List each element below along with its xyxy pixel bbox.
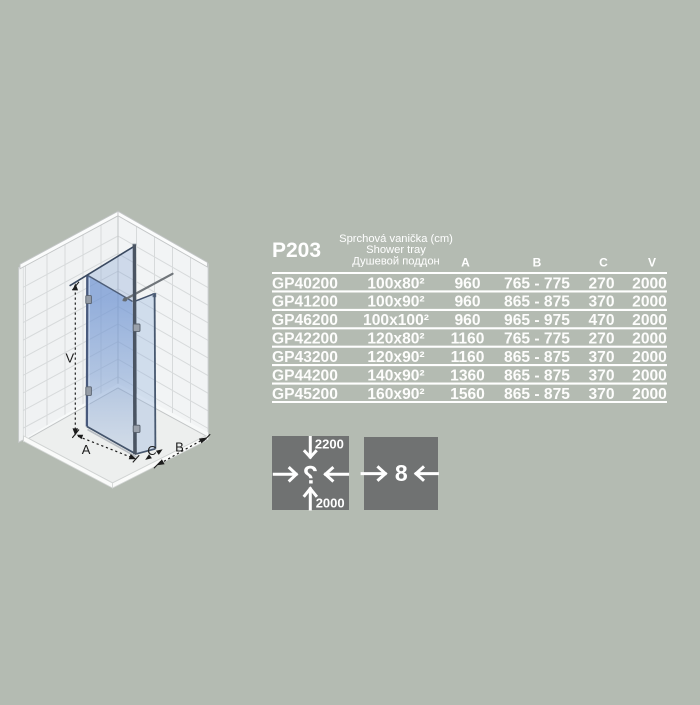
svg-text:965 - 975: 965 - 975 [504,312,570,329]
svg-text:960: 960 [454,312,480,329]
svg-text:C: C [147,443,156,458]
svg-text:Shower tray: Shower tray [366,244,426,256]
svg-text:2000: 2000 [316,495,345,510]
svg-text:1560: 1560 [450,386,485,403]
svg-text:B: B [175,439,184,454]
svg-text:270: 270 [588,275,614,292]
svg-text:960: 960 [454,294,480,311]
svg-text:?: ? [303,462,318,490]
svg-text:2000: 2000 [632,294,667,311]
svg-text:1160: 1160 [451,331,485,348]
svg-text:370: 370 [588,368,614,385]
svg-text:865 - 875: 865 - 875 [504,349,570,366]
svg-text:2000: 2000 [632,331,667,348]
svg-text:GP43200: GP43200 [272,349,338,366]
svg-text:865 - 875: 865 - 875 [504,386,570,403]
svg-text:2000: 2000 [632,349,667,366]
svg-text:GP46200: GP46200 [272,312,338,329]
svg-text:GP42200: GP42200 [272,331,338,348]
svg-text:765 - 775: 765 - 775 [504,331,570,348]
svg-text:100x90²: 100x90² [367,294,424,311]
svg-text:Душевой поддон: Душевой поддон [352,255,440,267]
svg-text:140x90²: 140x90² [367,368,424,385]
svg-text:470: 470 [588,312,614,329]
svg-text:100x100²: 100x100² [363,312,429,329]
svg-text:2000: 2000 [632,368,667,385]
svg-text:370: 370 [588,386,614,403]
svg-text:C: C [599,255,608,269]
svg-text:1360: 1360 [450,368,485,385]
svg-text:1160: 1160 [451,349,485,366]
svg-text:GP41200: GP41200 [272,294,338,311]
svg-text:120x90²: 120x90² [367,349,424,366]
svg-text:160x90²: 160x90² [367,386,424,403]
svg-text:100x80²: 100x80² [367,275,424,292]
svg-text:2000: 2000 [632,275,667,292]
svg-text:2000: 2000 [632,386,667,403]
svg-text:370: 370 [588,349,614,366]
svg-text:865 - 875: 865 - 875 [504,368,570,385]
svg-text:865 - 875: 865 - 875 [504,294,570,311]
svg-text:2000: 2000 [632,312,667,329]
svg-text:120x80²: 120x80² [367,331,424,348]
svg-text:P203: P203 [272,239,321,262]
svg-text:8: 8 [395,460,408,486]
svg-text:370: 370 [588,294,614,311]
svg-text:V: V [65,350,74,365]
svg-text:A: A [461,255,470,269]
svg-text:270: 270 [588,331,614,348]
svg-text:GP40200: GP40200 [272,275,338,292]
svg-text:765 - 775: 765 - 775 [504,275,570,292]
svg-text:V: V [648,255,656,269]
svg-text:A: A [82,442,91,457]
svg-text:B: B [533,255,542,269]
svg-text:GP44200: GP44200 [272,368,338,385]
svg-text:960: 960 [454,275,480,292]
svg-text:2200: 2200 [315,437,344,452]
svg-text:GP45200: GP45200 [272,386,338,403]
svg-text:Sprchová vanička (cm): Sprchová vanička (cm) [339,233,453,245]
